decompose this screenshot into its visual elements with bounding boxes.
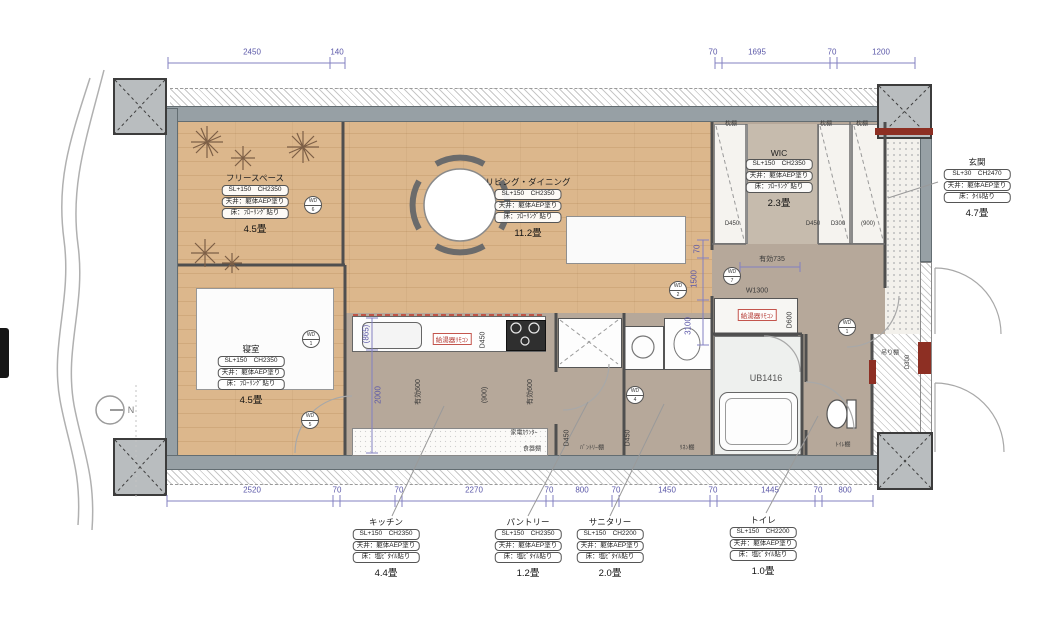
wall-bottom: [165, 455, 932, 470]
marker-wd1-bedroom: WD1: [302, 330, 320, 348]
dim-top-1695: 1695: [748, 48, 766, 57]
marker-wd1-entrance: WD1: [838, 318, 856, 336]
room-label-sanitary: サニタリー SL+150 CH2200 天井：躯体AEP塗り 床：塩ﾋﾞﾀｲﾙ貼…: [577, 516, 644, 579]
column-bottom-right: [877, 432, 933, 490]
dim-865: (865): [362, 325, 371, 344]
room-label-wic: WIC SL+150 CH2350 天井：躯体AEP塗り 床：ﾌﾛｰﾘﾝｸﾞ貼り…: [746, 148, 813, 209]
dim-bot-800b: 800: [838, 486, 851, 495]
dim-w1300: W1300: [746, 288, 768, 295]
dim-right-70: 70: [693, 245, 702, 254]
dim-d600: D600: [787, 312, 794, 329]
dim-wic-900: (900): [861, 221, 875, 227]
column-top-left: [113, 78, 167, 135]
marker-wd7: WD7: [723, 267, 741, 285]
washing-machine: [624, 326, 664, 370]
exterior-hatch-bottom: [165, 470, 932, 485]
dim-bot-70c: 70: [545, 486, 554, 495]
label-makura-1: 枕棚: [725, 119, 737, 128]
dim-d300-hang: D300: [905, 355, 911, 369]
north-label: N: [128, 405, 135, 415]
room-label-kitchen: キッチン SL+150 CH2350 天井：躯体AEP塗り 床：塩ﾋﾞﾀｲﾙ貼り…: [353, 516, 420, 579]
dim-bot-70b: 70: [395, 486, 404, 495]
sofa: [566, 216, 686, 264]
room-label-freespace: フリースペース SL+150 CH2350 天井：躯体AEP塗り 床：ﾌﾛｰﾘﾝ…: [222, 172, 289, 235]
dim-right-1500: 1500: [690, 270, 699, 288]
marker-wd6: WD6: [304, 196, 322, 214]
dim-top-70a: 70: [709, 48, 718, 57]
pantry-shelf-unit: [558, 318, 622, 368]
stove: [506, 320, 546, 351]
dim-bot-70d: 70: [612, 486, 621, 495]
dim-bot-70a: 70: [333, 486, 342, 495]
label-makura-3: 枕棚: [856, 119, 868, 128]
dim-bot-1450: 1450: [658, 486, 676, 495]
column-bottom-left: [113, 438, 167, 496]
marker-wd2: WD2: [669, 281, 687, 299]
floor-plan-canvas: フリースペース SL+150 CH2350 天井：躯体AEP塗り 床：ﾌﾛｰﾘﾝ…: [0, 0, 1042, 626]
room-label-bedroom: 寝室 SL+150 CH2350 天井：躯体AEP塗り 床：ﾌﾛｰﾘﾝｸﾞ貼り …: [218, 343, 285, 406]
dim-d450-sanitary: D450: [625, 430, 632, 447]
room-label-entrance: 玄関 SL+30 CH2470 天井：躯体AEP塗り 床：ﾀｲﾙ貼り 4.7畳: [944, 156, 1011, 219]
dim-yuko600-left: 有効600: [413, 379, 423, 405]
bathtub-inner: [725, 398, 792, 445]
dim-top-1200: 1200: [872, 48, 890, 57]
dim-wic-d450b: D450: [806, 221, 820, 227]
label-kaden-counter: 家電ｶｳﾝﾀｰ: [510, 428, 537, 437]
label-shokkidana: 食器棚: [523, 444, 541, 453]
dim-d450-kitchen: D450: [480, 332, 487, 349]
site-boundary-lines: [57, 70, 104, 530]
dim-top-70b: 70: [828, 48, 837, 57]
wall-left: [165, 108, 178, 470]
marker-wd4: WD4: [626, 386, 644, 404]
left-edge-bar: [0, 328, 9, 378]
dim-900-kitchen: (900): [482, 387, 489, 403]
label-pantry-shelf: ﾊﾟﾝﾄﾘｰ棚: [580, 443, 604, 452]
dim-top-2450: 2450: [243, 48, 261, 57]
entrance-tile-floor: [885, 122, 920, 334]
label-toilet-shelf: ﾄｲﾚ棚: [835, 440, 850, 449]
label-makura-2: 枕棚: [820, 119, 832, 128]
dim-d450-pantry: D450: [564, 430, 571, 447]
dim-wic-d450a: D450: [725, 221, 739, 227]
label-ub1416: UB1416: [750, 373, 783, 383]
wall-top: [165, 106, 932, 122]
room-label-pantry: パントリー SL+150 CH2350 天井：躯体AEP塗り 床：塩ﾋﾞﾀｲﾙ貼…: [495, 516, 562, 579]
dim-yuko735: 有効735: [759, 254, 785, 264]
marker-wd5: WD5: [301, 411, 319, 429]
label-remote-hall: 給湯器ﾘﾓｺﾝ: [738, 309, 777, 321]
wall-right-upper: [920, 122, 932, 262]
column-top-right: [877, 84, 932, 139]
dim-2000: 2000: [374, 386, 383, 404]
label-remote-kitchen: 給湯器ﾘﾓｺﾝ: [433, 333, 472, 345]
label-linen-shelf: ﾘﾈﾝ棚: [679, 443, 694, 452]
dim-wic-d300: D300: [831, 221, 845, 227]
dim-bot-2270: 2270: [465, 486, 483, 495]
dim-bot-1445: 1445: [761, 486, 779, 495]
room-label-toilet: トイレ SL+150 CH2200 天井：躯体AEP塗り 床：塩ﾋﾞﾀｲﾙ貼り …: [730, 514, 797, 577]
label-hanging-shelf: 吊り棚: [881, 348, 899, 357]
dim-bot-800a: 800: [575, 486, 588, 495]
dim-top-140: 140: [330, 48, 343, 57]
dim-right-3100: 3100: [684, 317, 693, 335]
dim-bot-70e: 70: [709, 486, 718, 495]
dim-yuko600-right: 有効600: [525, 379, 535, 405]
dim-bot-70f: 70: [814, 486, 823, 495]
kitchen-sink: [362, 322, 422, 349]
dim-bot-2520: 2520: [243, 486, 261, 495]
room-label-living: リビング・ダイニング SL+150 CH2350 天井：躯体AEP塗り 床：ﾌﾛ…: [485, 176, 570, 239]
